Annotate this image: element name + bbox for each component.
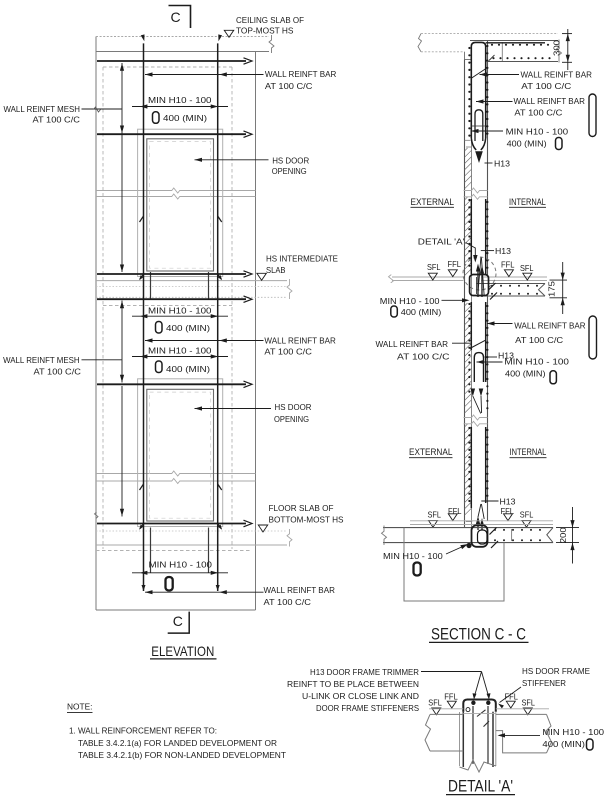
svg-text:FFL: FFL [444,692,458,702]
svg-text:INTERNAL: INTERNAL [509,197,546,208]
svg-text:AT 100 C/C: AT 100 C/C [265,81,313,91]
svg-text:TOP-MOST HS: TOP-MOST HS [236,26,294,36]
svg-text:HS INTERMEDIATE: HS INTERMEDIATE [266,254,338,264]
svg-text:MIN H10 - 100: MIN H10 - 100 [148,345,212,355]
svg-text:MIN H10 - 100: MIN H10 - 100 [149,560,213,570]
svg-text:CEILING SLAB OF: CEILING SLAB OF [236,15,304,25]
svg-text:SFL: SFL [520,510,534,520]
svg-text:175: 175 [547,281,557,297]
svg-text:MIN H10 - 100: MIN H10 - 100 [148,95,212,105]
svg-text:WALL REINFT MESH: WALL REINFT MESH [4,104,81,114]
svg-text:MIN H10 - 100: MIN H10 - 100 [148,306,212,316]
svg-text:OPENING: OPENING [274,414,309,424]
svg-text:SFL: SFL [520,263,534,273]
svg-text:200: 200 [558,527,568,543]
svg-text:EXTERNAL: EXTERNAL [409,447,452,458]
svg-text:WALL REINFT BAR: WALL REINFT BAR [376,339,449,349]
svg-text:DETAIL 'A': DETAIL 'A' [448,778,513,796]
svg-text:AT 100 C/C: AT 100 C/C [33,115,81,125]
svg-text:AT 100 C/C: AT 100 C/C [514,107,562,117]
svg-text:400 (MIN): 400 (MIN) [163,113,207,123]
svg-text:WALL REINFT BAR: WALL REINFT BAR [265,69,336,79]
svg-text:TABLE 3.4.2.1(a) FOR LANDED DE: TABLE 3.4.2.1(a) FOR LANDED DEVELOPMENT … [78,738,277,748]
svg-text:300: 300 [552,40,562,56]
svg-text:WALL REINFT MESH: WALL REINFT MESH [3,355,80,365]
svg-text:H13 DOOR FRAME TRIMMER: H13 DOOR FRAME TRIMMER [310,667,419,677]
svg-text:H13: H13 [500,496,516,506]
svg-text:H13: H13 [498,350,514,360]
svg-text:FFL: FFL [501,260,515,270]
svg-text:HS DOOR: HS DOOR [272,155,309,165]
svg-text:1. WALL REINFORCEMENT REFER TO: 1. WALL REINFORCEMENT REFER TO: [69,726,217,736]
svg-text:SLAB: SLAB [266,265,286,275]
svg-text:H13: H13 [495,246,511,256]
svg-text:DETAIL 'A': DETAIL 'A' [418,236,465,246]
svg-text:STIFFENER: STIFFENER [522,678,566,688]
svg-text:SFL: SFL [428,509,442,519]
svg-text:MIN H10 - 100: MIN H10 - 100 [504,357,569,367]
svg-text:WALL REINFT BAR: WALL REINFT BAR [521,70,592,80]
svg-text:NOTE:: NOTE: [67,702,93,712]
svg-text:U-LINK OR CLOSE LINK AND: U-LINK OR CLOSE LINK AND [302,691,419,701]
svg-text:AT 100 C/C: AT 100 C/C [397,352,450,362]
svg-text:WALL REINFT BAR: WALL REINFT BAR [514,96,585,106]
svg-text:SFL: SFL [428,698,442,708]
svg-text:INTERNAL: INTERNAL [510,447,547,458]
svg-text:WALL REINFT BAR: WALL REINFT BAR [514,320,585,330]
svg-text:DOOR FRAME STIFFENERS: DOOR FRAME STIFFENERS [316,703,419,713]
svg-text:FFL: FFL [505,692,519,702]
svg-text:H13: H13 [494,158,510,168]
svg-text:AT 100 C/C: AT 100 C/C [264,346,312,356]
svg-text:400 (MIN): 400 (MIN) [166,323,210,333]
svg-text:OPENING: OPENING [272,166,307,176]
svg-text:400 (MIN): 400 (MIN) [401,307,442,317]
svg-text:400 (MIN): 400 (MIN) [507,139,547,149]
svg-text:MIN H10 - 100: MIN H10 - 100 [542,727,604,737]
svg-text:C: C [171,9,181,25]
svg-text:C: C [173,613,183,629]
svg-text:AT 100 C/C: AT 100 C/C [34,367,82,377]
svg-text:WALL REINFT BAR: WALL REINFT BAR [264,336,335,346]
svg-text:HS DOOR: HS DOOR [275,402,312,412]
svg-text:HS DOOR FRAME: HS DOOR FRAME [522,666,590,676]
svg-text:AT 100 C/C: AT 100 C/C [515,335,563,345]
svg-text:FFL: FFL [448,259,462,269]
svg-text:BOTTOM-MOST HS: BOTTOM-MOST HS [269,514,344,524]
svg-text:REINFT TO BE PLACE BETWEEN: REINFT TO BE PLACE BETWEEN [287,679,419,689]
svg-text:WALL REINFT BAR: WALL REINFT BAR [264,585,335,595]
svg-text:AT 100 C/C: AT 100 C/C [264,597,312,607]
svg-text:400 (MIN): 400 (MIN) [505,369,546,379]
svg-text:400 (MIN): 400 (MIN) [166,364,210,374]
svg-text:ELEVATION: ELEVATION [151,643,214,659]
svg-text:MIN H10 - 100: MIN H10 - 100 [506,127,569,137]
svg-text:SFL: SFL [427,262,441,272]
svg-text:EXTERNAL: EXTERNAL [411,197,454,208]
svg-text:FFL: FFL [448,506,462,516]
svg-text:MIN H10 - 100: MIN H10 - 100 [383,551,443,561]
svg-text:SECTION C - C: SECTION C - C [431,625,526,643]
svg-text:SFL: SFL [522,698,536,708]
svg-text:AT 100 C/C: AT 100 C/C [521,81,571,91]
svg-text:MIN H10 - 100: MIN H10 - 100 [380,296,440,306]
svg-text:TABLE 3.4.2.1(b) FOR NON-LANDE: TABLE 3.4.2.1(b) FOR NON-LANDED DEVELOPM… [78,750,286,760]
svg-text:400 (MIN): 400 (MIN) [542,739,585,749]
svg-text:FLOOR SLAB OF: FLOOR SLAB OF [269,503,334,513]
